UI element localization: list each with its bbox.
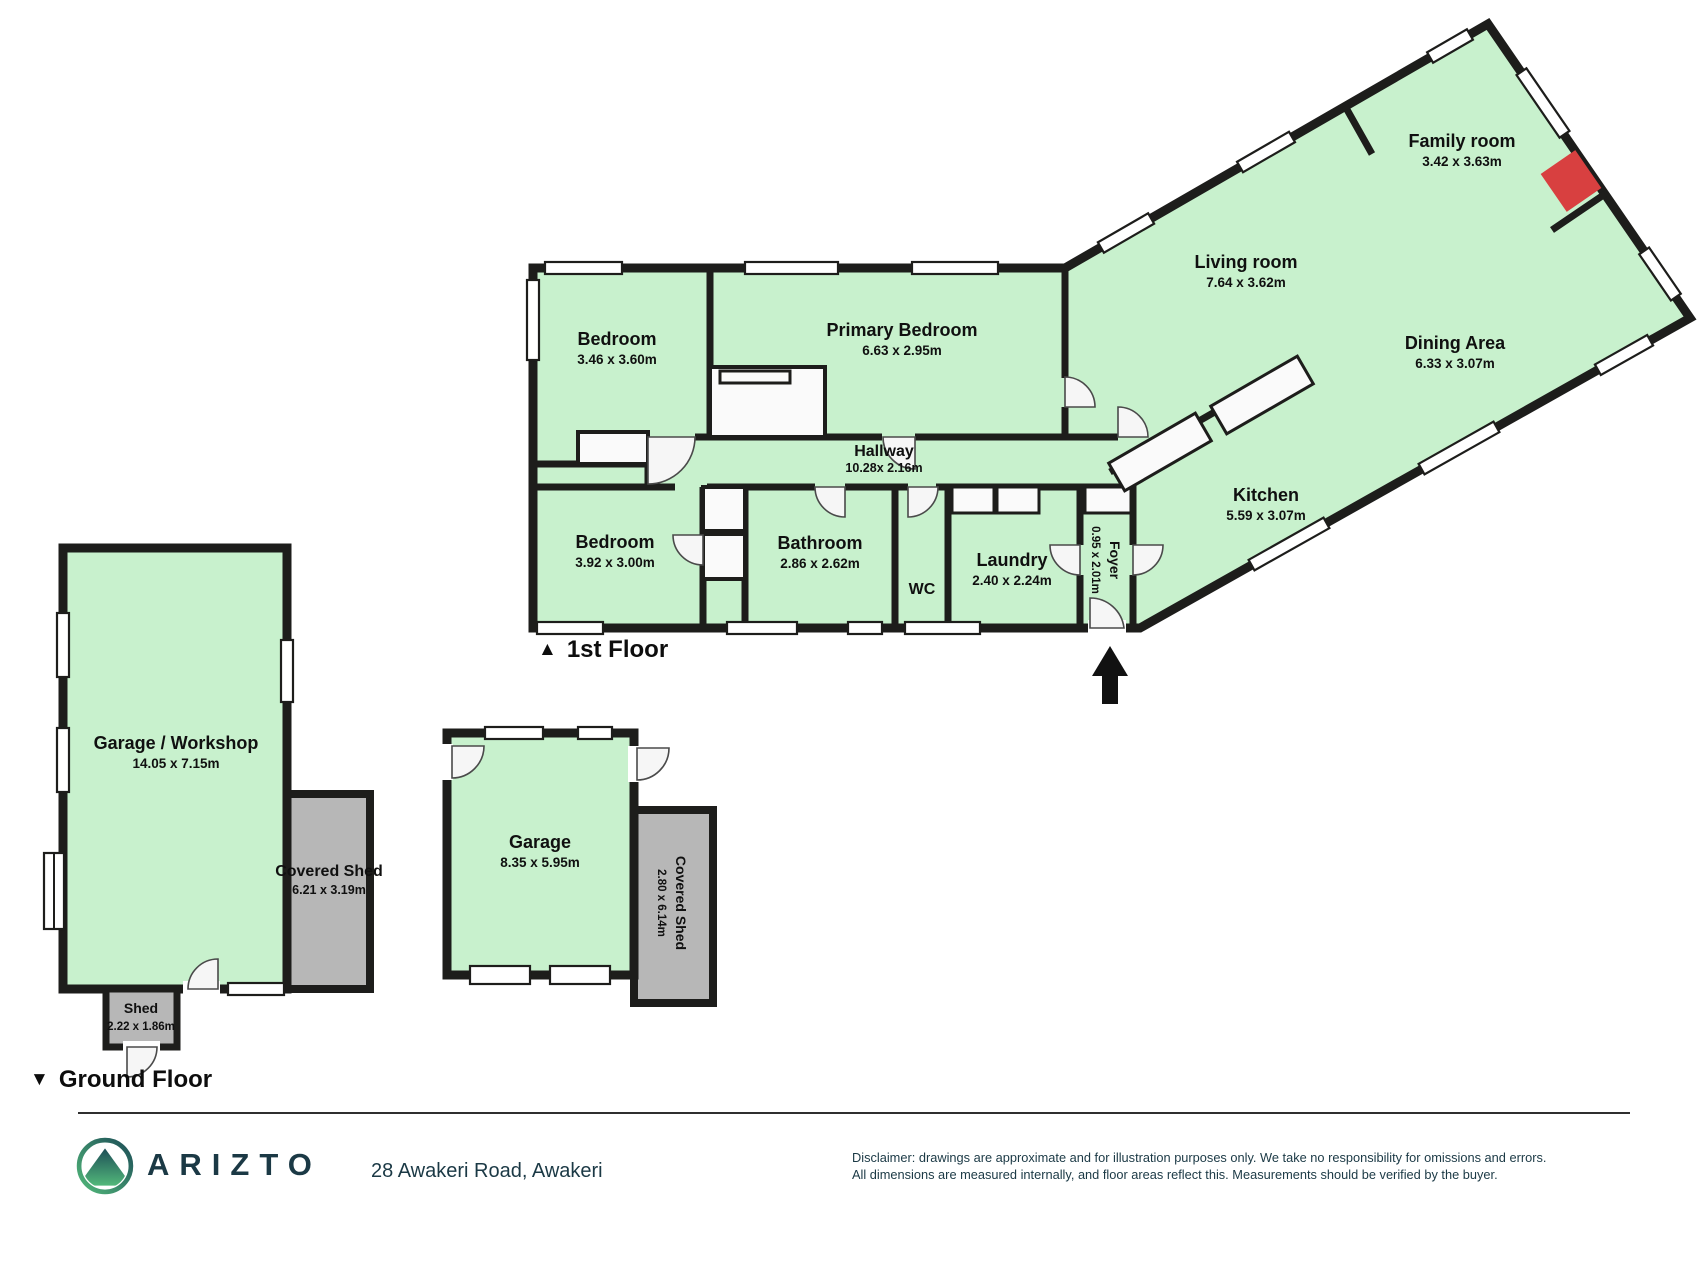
first-floor-label: 1st Floor: [567, 636, 668, 664]
room-dims-garage-workshop: 14.05 x 7.15m: [132, 756, 219, 771]
room-dims-primary-bedroom: 6.63 x 2.95m: [862, 343, 942, 358]
room-dims-kitchen: 5.59 x 3.07m: [1226, 508, 1306, 523]
room-dims-dining-area: 6.33 x 3.07m: [1415, 356, 1495, 371]
disclaimer-text: Disclaimer: drawings are approximate and…: [852, 1149, 1627, 1183]
room-label-primary-bedroom: Primary Bedroom: [826, 320, 977, 340]
first-floor-plan: Bedroom 3.46 x 3.60m Primary Bedroom 6.6…: [527, 24, 1690, 704]
window: [228, 983, 284, 995]
room-label-shed: Shed: [124, 1000, 158, 1016]
window: [545, 262, 622, 274]
room-label-laundry: Laundry: [976, 550, 1047, 570]
first-floor-marker: ▲ 1st Floor: [538, 636, 668, 664]
property-address: 28 Awakeri Road, Awakeri: [371, 1160, 603, 1183]
room-label-dining-area: Dining Area: [1405, 333, 1506, 353]
room-label-garage: Garage: [509, 832, 571, 852]
closet: [703, 534, 745, 579]
room-label-family-room: Family room: [1408, 131, 1515, 151]
room-label-garage-workshop: Garage / Workshop: [94, 733, 259, 753]
room-dims-covered-shed-right: 2.80 x 6.14m: [655, 869, 667, 937]
disclaimer-line-1: Disclaimer: drawings are approximate and…: [852, 1149, 1627, 1166]
up-triangle-icon: ▲: [538, 639, 557, 661]
closet: [703, 487, 745, 531]
window: [912, 262, 998, 274]
window: [745, 262, 838, 274]
down-triangle-icon: ▼: [30, 1069, 49, 1091]
garage-door: [470, 966, 530, 984]
room-dims-covered-shed-left: 6.21 x 3.19m: [292, 883, 366, 897]
room-label-bedroom2: Bedroom: [575, 532, 654, 552]
room-label-wc: WC: [909, 581, 936, 598]
room-label-living-room: Living room: [1195, 252, 1298, 272]
room-label-covered-shed-left: Covered Shed: [275, 863, 383, 880]
window: [281, 640, 293, 702]
room-label-bathroom: Bathroom: [778, 533, 863, 553]
room-label-bedroom1: Bedroom: [577, 329, 656, 349]
closet: [578, 432, 648, 464]
window: [485, 727, 543, 739]
window: [727, 622, 797, 634]
laundry-appliance: [952, 487, 994, 513]
garage-door: [550, 966, 610, 984]
laundry-appliance: [997, 487, 1039, 513]
wardrobe-shelf: [720, 371, 790, 383]
entrance-arrow-icon: [1092, 646, 1128, 704]
room-label-foyer: Foyer: [1107, 541, 1123, 580]
room-dims-foyer: 0.95 x 2.01m: [1089, 526, 1101, 594]
room-dims-laundry: 2.40 x 2.24m: [972, 573, 1052, 588]
room-dims-garage: 8.35 x 5.95m: [500, 855, 580, 870]
window: [527, 280, 539, 360]
floor-plan-drawing: Bedroom 3.46 x 3.60m Primary Bedroom 6.6…: [0, 0, 1707, 1280]
door: [637, 748, 669, 780]
room-label-covered-shed-right: Covered Shed: [673, 856, 689, 950]
brand-name: ARIZTO: [147, 1147, 322, 1183]
room-dims-hallway: 10.28x 2.16m: [845, 461, 922, 475]
room-dims-bedroom2: 3.92 x 3.00m: [575, 555, 655, 570]
disclaimer-line-2: All dimensions are measured internally, …: [852, 1166, 1627, 1183]
room-dims-family-room: 3.42 x 3.63m: [1422, 154, 1502, 169]
window: [905, 622, 980, 634]
window: [57, 728, 69, 792]
window: [57, 613, 69, 677]
room-label-hallway: Hallway: [854, 443, 914, 460]
room-dims-bedroom1: 3.46 x 3.60m: [577, 352, 657, 367]
arizto-logo-icon: [76, 1137, 134, 1195]
room-dims-living-room: 7.64 x 3.62m: [1206, 275, 1286, 290]
room-dims-shed: 2.22 x 1.86m: [107, 1021, 175, 1033]
floorplan-page: Bedroom 3.46 x 3.60m Primary Bedroom 6.6…: [0, 0, 1707, 1280]
window: [848, 622, 882, 634]
footer-divider: [78, 1112, 1630, 1114]
window: [537, 622, 603, 634]
shed: [106, 989, 177, 1047]
room-dims-bathroom: 2.86 x 2.62m: [780, 556, 860, 571]
window: [578, 727, 612, 739]
ground-floor-marker: ▼ Ground Floor: [30, 1066, 212, 1094]
ground-floor-label: Ground Floor: [59, 1066, 212, 1094]
room-label-kitchen: Kitchen: [1233, 485, 1299, 505]
